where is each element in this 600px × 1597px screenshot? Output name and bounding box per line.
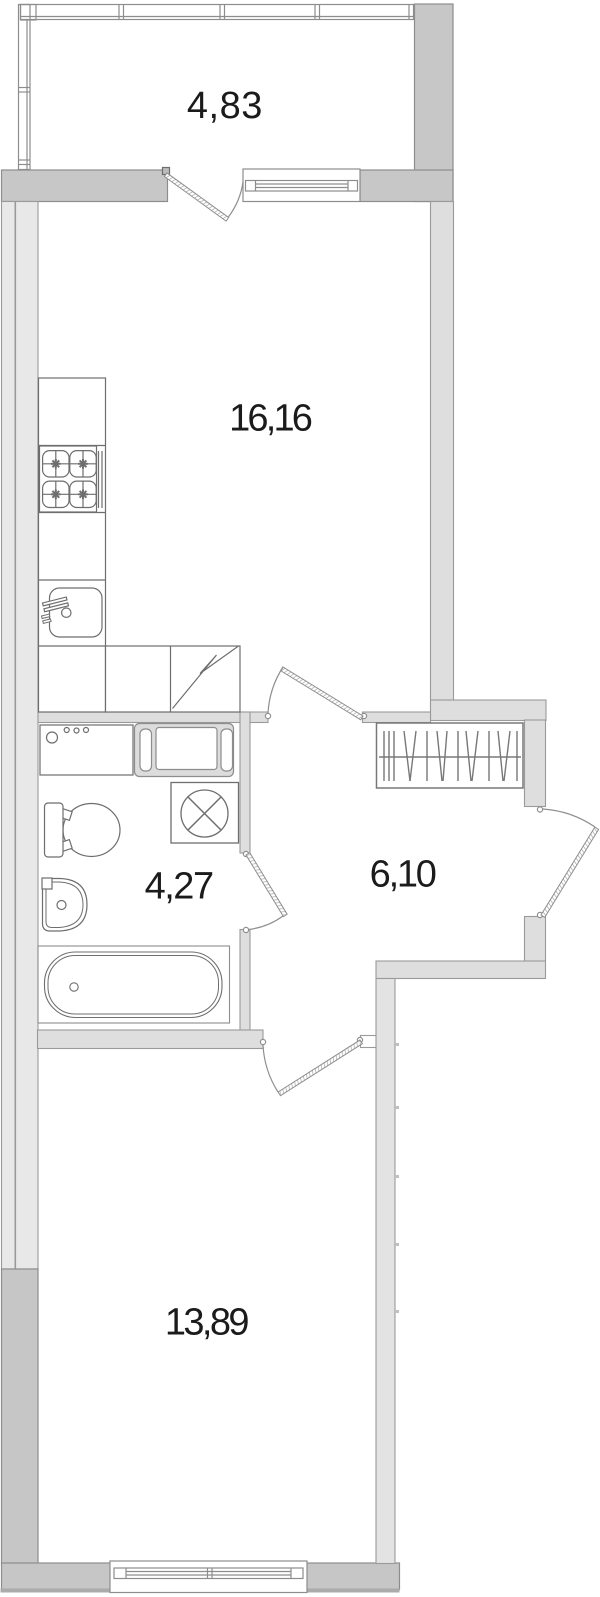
svg-text:13,89: 13,89: [165, 1302, 248, 1344]
svg-text:4,83: 4,83: [187, 85, 263, 127]
svg-text:4,27: 4,27: [145, 866, 213, 908]
svg-text:6,10: 6,10: [370, 854, 436, 896]
svg-text:16,16: 16,16: [229, 398, 312, 440]
